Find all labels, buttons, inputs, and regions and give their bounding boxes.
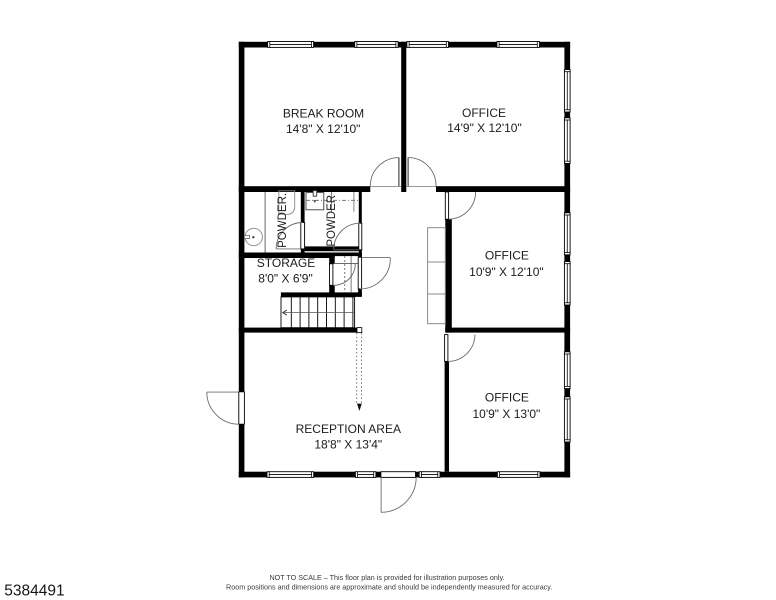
- svg-text:OFFICE: OFFICE: [485, 390, 529, 404]
- svg-text:POWDER: POWDER: [326, 195, 338, 247]
- svg-text:BREAK ROOM: BREAK ROOM: [283, 106, 364, 120]
- svg-text:14'9" X 12'10": 14'9" X 12'10": [447, 121, 522, 135]
- svg-text:10'9" X 12'10": 10'9" X 12'10": [469, 265, 544, 279]
- svg-text:NOT TO SCALE – This floor plan: NOT TO SCALE – This floor plan is provid…: [269, 573, 504, 582]
- svg-text:OFFICE: OFFICE: [462, 106, 506, 120]
- svg-text:POWDER.: POWDER.: [277, 193, 289, 248]
- svg-text:10'9" X 13'0": 10'9" X 13'0": [472, 407, 540, 421]
- svg-text:14'8" X 12'10": 14'8" X 12'10": [286, 122, 361, 136]
- svg-text:RECEPTION AREA: RECEPTION AREA: [296, 422, 401, 436]
- svg-text:8'0" X 6'9": 8'0" X 6'9": [258, 271, 312, 285]
- svg-text:STORAGE: STORAGE: [257, 256, 315, 270]
- svg-text:18'8" X 13'4": 18'8" X 13'4": [314, 438, 382, 452]
- svg-text:Room positions and dimensions: Room positions and dimensions are approx…: [226, 583, 552, 592]
- svg-text:5384491: 5384491: [4, 583, 64, 600]
- svg-text:OFFICE: OFFICE: [485, 248, 529, 262]
